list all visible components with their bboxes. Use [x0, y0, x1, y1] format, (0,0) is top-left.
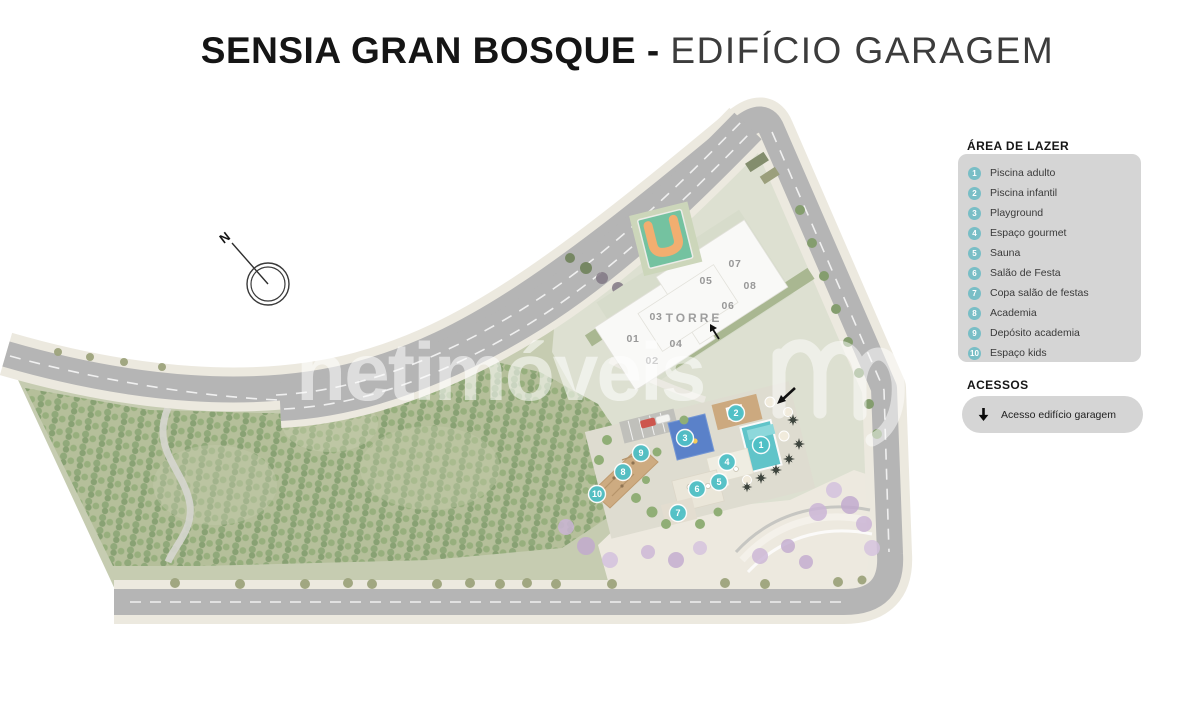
legend-number-badge: 9 [968, 327, 981, 340]
svg-text:5: 5 [716, 477, 721, 487]
svg-text:8: 8 [620, 467, 625, 477]
legend-item-piscina-adulto: 1Piscina adulto [968, 163, 1141, 183]
legend-number-badge: 8 [968, 307, 981, 320]
legend-item-playground: 3Playground [968, 203, 1141, 223]
legend-header: ÁREA DE LAZER [967, 139, 1069, 153]
legend-item-deposito-academia: 9Depósito academia [968, 323, 1141, 343]
svg-text:7: 7 [675, 508, 680, 518]
map-marker-7: 7 [670, 505, 687, 522]
svg-text:10: 10 [592, 489, 602, 499]
svg-text:2: 2 [733, 408, 738, 418]
svg-text:3: 3 [682, 433, 687, 443]
svg-text:4: 4 [724, 457, 729, 467]
map-marker-1: 1 [753, 437, 770, 454]
legend-item-espaco-gourmet: 4Espaço gourmet [968, 223, 1141, 243]
legend-number-badge: 3 [968, 207, 981, 220]
map-marker-8: 8 [615, 464, 632, 481]
watermark-text: netimóveis [296, 327, 704, 418]
legend-item-copa-salao: 7Copa salão de festas [968, 283, 1141, 303]
map-marker-10: 10 [589, 486, 606, 503]
legend-number-badge: 7 [968, 287, 981, 300]
legend-number-badge: 6 [968, 267, 981, 280]
legend-number-badge: 2 [968, 187, 981, 200]
legend-item-salao-de-festa: 6Salão de Festa [968, 263, 1141, 283]
acessos-item-garagem: Acesso edifício garagem [962, 396, 1143, 433]
acessos-item-label: Acesso edifício garagem [1001, 409, 1116, 421]
legend-item-piscina-infantil: 2Piscina infantil [968, 183, 1141, 203]
map-marker-4: 4 [719, 454, 736, 471]
svg-text:9: 9 [638, 448, 643, 458]
map-marker-6: 6 [689, 481, 706, 498]
legend-number-badge: 4 [968, 227, 981, 240]
svg-text:6: 6 [694, 484, 699, 494]
map-marker-9: 9 [633, 445, 650, 462]
site-plan-page: SENSIA GRAN BOSQUE - EDIFÍCIO GARAGEM [0, 0, 1200, 720]
acessos-header: ACESSOS [967, 378, 1028, 392]
map-marker-3: 3 [677, 430, 694, 447]
svg-text:1: 1 [758, 440, 763, 450]
map-marker-5: 5 [711, 474, 728, 491]
legend-item-sauna: 5Sauna [968, 243, 1141, 263]
map-marker-2: 2 [728, 405, 745, 422]
legend-number-badge: 1 [968, 167, 981, 180]
legend-number-badge: 10 [968, 347, 981, 360]
legend-number-badge: 5 [968, 247, 981, 260]
legend-item-espaco-kids: 10Espaço kids [968, 343, 1141, 363]
legend-item-academia: 8Academia [968, 303, 1141, 323]
legend-panel: 1Piscina adulto 2Piscina infantil 3Playg… [958, 154, 1141, 362]
down-arrow-icon [977, 406, 990, 423]
